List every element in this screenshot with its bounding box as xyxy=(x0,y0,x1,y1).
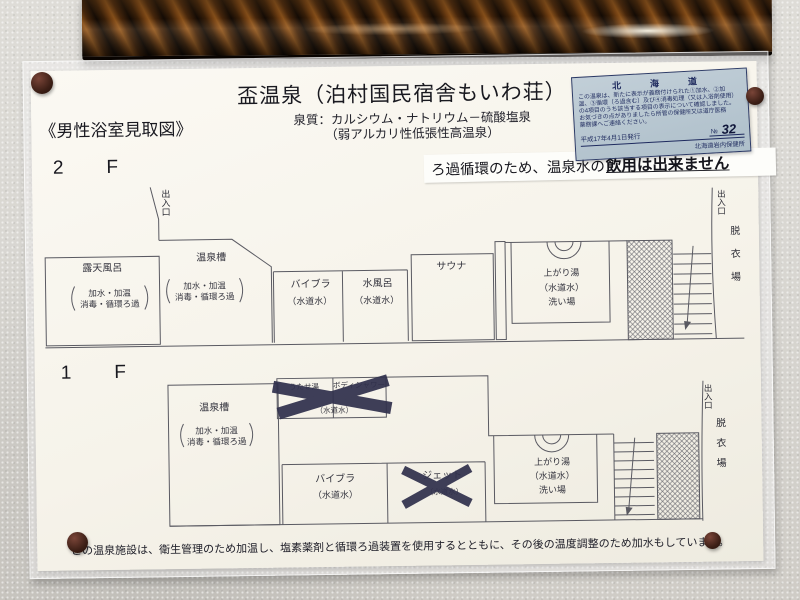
rotenburo-treatment2: 消毒・循環ろ過 xyxy=(80,299,140,310)
rinse-tub-icon xyxy=(547,241,581,258)
hokkaido-certificate-label: 北 海 道 この温泉は、新たに表示が義務付けられた①加水、②加 温、③循環（ろ過… xyxy=(571,67,751,161)
room-agariyu: 上がり湯 xyxy=(543,266,579,278)
floor2-plan: 露天風呂 加水・加温 消毒・循環ろ過 温泉槽 加水・加温 消毒・循環ろ過 バイブ… xyxy=(38,175,750,355)
room-mizuburo: 水風呂 xyxy=(362,277,392,289)
agariyu-water: （水道水） xyxy=(530,470,575,482)
certificate-number-label: № xyxy=(711,128,718,135)
floor1-walls xyxy=(168,373,705,528)
floor2-dressing-room: 脱衣場 xyxy=(726,225,742,294)
agariyu-washing: 洗い場 xyxy=(539,484,566,495)
poster-title: 盃温泉（泊村国民宿舎もいわ荘） xyxy=(202,75,602,111)
room-agariyu: 上がり湯 xyxy=(534,456,570,468)
room-vibra: バイブラ xyxy=(290,277,330,291)
footer-note: この温泉施設は、衛生管理のため加温し、塩素薬剤と循環ろ過装置を使用するとともに、… xyxy=(67,533,733,558)
agariyu-washing: 洗い場 xyxy=(548,296,575,307)
floor1-entrance-right: 出入口 xyxy=(702,384,714,410)
stairs-arrow-icon xyxy=(684,321,691,330)
vibra-water: （水道水） xyxy=(287,295,332,307)
map-title: 《男性浴室見取図》 xyxy=(39,115,192,142)
hatched-wall xyxy=(657,433,700,520)
room-onsenso: 温泉槽 xyxy=(196,250,226,263)
onsenso-treatment2: 消毒・循環ろ過 xyxy=(175,291,235,302)
floor1-label: 1 F xyxy=(61,357,139,385)
floor1-plan: 温泉槽 加水・加温 消毒・循環ろ過 うたせ湯 ボディシャワー （水道水） バイブ… xyxy=(161,363,728,533)
floor2-entrance-right: 出入口 xyxy=(715,189,727,215)
hatched-wall xyxy=(627,240,673,340)
pushpin-bottom-left xyxy=(67,532,88,553)
rotenburo-treatment1: 加水・加温 xyxy=(88,288,131,299)
mizuburo-water: （水道水） xyxy=(354,294,399,306)
floor2-walls xyxy=(43,179,744,348)
room-rotenburo: 露天風呂 xyxy=(82,262,122,275)
room-vibra: バイブラ xyxy=(315,472,355,486)
onsen-floorplan-poster: 盃温泉（泊村国民宿舎もいわ荘） 泉質：カルシウム・ナトリウム－硫酸塩泉 （弱アル… xyxy=(31,61,764,571)
certificate-number-value: 32 xyxy=(721,123,736,135)
pushpin-top-left xyxy=(31,72,53,94)
floor1-dressing-room: 脱衣場 xyxy=(711,417,727,477)
floor2-entrance-left: 出入口 xyxy=(159,189,172,216)
room-sauna: サウナ xyxy=(436,260,466,272)
agariyu-water: （水道水） xyxy=(539,281,584,293)
room-onsenso: 温泉槽 xyxy=(199,400,229,413)
certificate-number: №32 xyxy=(708,123,744,137)
stairs-icon xyxy=(673,254,712,335)
onsenso-treatment2: 消毒・循環ろ過 xyxy=(187,436,247,447)
vibra-water: （水道水） xyxy=(313,489,358,501)
pushpin-top-right xyxy=(746,87,764,105)
onsenso-treatment1: 加水・加温 xyxy=(183,280,226,291)
wall-background: 盃温泉（泊村国民宿舎もいわ荘） 泉質：カルシウム・ナトリウム－硫酸塩泉 （弱アル… xyxy=(0,0,800,600)
onsenso-treatment1: 加水・加温 xyxy=(195,425,238,436)
stairs-icon xyxy=(614,442,655,515)
floor2-label: 2 F xyxy=(53,152,131,180)
rinse-tub-icon xyxy=(535,435,569,452)
pushpin-bottom-right xyxy=(704,532,721,549)
spring-quality: 泉質：カルシウム・ナトリウム－硫酸塩泉 （弱アルカリ性低張性高温泉） xyxy=(232,109,592,144)
certificate-issue-date: 平成17年4月1日発行 xyxy=(580,130,640,143)
